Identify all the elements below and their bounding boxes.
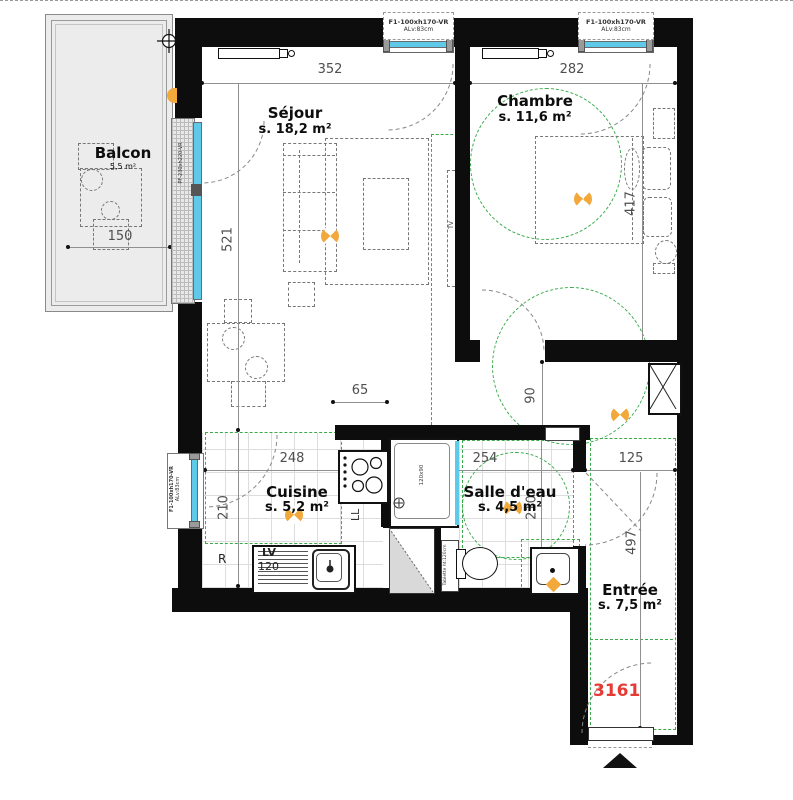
window-label-line2: ALv:83cm <box>384 26 453 34</box>
wall-niche <box>545 427 580 441</box>
entry-arrow <box>603 753 637 768</box>
light-icon-bedroom <box>574 190 592 208</box>
wall-segment <box>175 18 383 47</box>
dim-cuisine-height: 210 <box>217 490 232 526</box>
wall-segment <box>178 302 202 453</box>
window-label-left: F1-100xh170-VR ALv:83cm <box>169 457 183 521</box>
window-cap <box>646 39 653 52</box>
room-label-balcon: Balcon <box>78 144 168 162</box>
wall-segment <box>455 18 470 362</box>
dim-chambre-height: 417 <box>624 186 639 222</box>
wall-segment <box>455 340 480 362</box>
radiator-knob <box>288 50 295 57</box>
dim-tick <box>331 400 335 404</box>
room-label-chambre: Chambre <box>490 92 580 110</box>
dim-tick <box>540 360 544 364</box>
dim-line <box>238 433 239 586</box>
entry-door-leaf <box>588 727 654 741</box>
radiator-knob <box>547 50 554 57</box>
coffee-table <box>363 178 409 250</box>
cooktop <box>338 450 389 504</box>
radiator <box>482 48 539 59</box>
dim-tick <box>66 245 70 249</box>
radiator <box>218 48 280 59</box>
dim-sejour-height: 521 <box>221 222 236 258</box>
window-cap <box>578 39 585 52</box>
floor-plan: TV <box>0 0 793 800</box>
wall-segment <box>172 588 585 612</box>
window-label-line2: ALv:83cm <box>175 457 181 521</box>
window-glazing <box>388 41 449 48</box>
balcony-chair <box>101 201 120 220</box>
window-label-line2: ALv:83cm <box>579 26 653 34</box>
washbasin-faucet <box>550 568 555 573</box>
dim-line <box>238 83 239 432</box>
sofa-back-line <box>299 150 300 263</box>
washer-label: LL <box>353 503 359 527</box>
window-label-box: F1-100xh170-VR ALv:83cm <box>578 12 654 40</box>
window-cap <box>446 39 453 52</box>
dining-chair <box>231 381 266 407</box>
door-swing-window-living <box>387 64 453 130</box>
wall-segment <box>573 440 586 472</box>
dim-chambre-width: 282 <box>552 62 592 77</box>
accessibility-line-living-top <box>431 134 458 135</box>
wall-light-icon <box>167 88 177 103</box>
accessibility-line-living <box>431 134 432 430</box>
room-label-salledeau: Salle d'eau <box>455 483 565 501</box>
window-glazing <box>583 41 649 48</box>
dim-line <box>470 83 677 84</box>
radiator-valve <box>279 49 288 58</box>
fridge-label: R <box>218 552 226 566</box>
dim-line <box>542 362 543 429</box>
accessibility-line-entry <box>590 639 673 640</box>
reserved-area <box>389 528 435 594</box>
room-area-salledeau: s. 4,5 m² <box>455 500 565 515</box>
wall-segment <box>545 340 693 362</box>
room-label-entree: Entrée <box>585 581 675 599</box>
unit-number: 3161 <box>593 681 653 701</box>
wardrobe <box>643 197 672 237</box>
shower-size-label: 120x90 <box>419 455 425 495</box>
room-area-sejour: s. 18,2 m² <box>250 122 340 137</box>
window-label-line1: F1-100xh170-VR <box>384 18 453 26</box>
dim-line <box>68 247 170 248</box>
dim-hall-width: 65 <box>345 383 375 398</box>
dim-hall-height: 90 <box>524 381 539 411</box>
dim-tick <box>385 400 389 404</box>
room-area-balcon: 5,5 m² <box>90 162 156 171</box>
bedroom-chair <box>624 148 640 190</box>
light-icon-living <box>321 227 339 245</box>
dishwasher-label: LV <box>262 546 276 559</box>
window-label-box: F1-100xh170-VR ALv:83cm <box>383 12 454 40</box>
property-line <box>0 0 793 1</box>
dim-tick <box>236 428 240 432</box>
dim-line <box>642 83 643 356</box>
radiator-valve <box>538 49 547 58</box>
dim-line <box>202 83 455 84</box>
wardrobe <box>642 147 671 190</box>
dishwasher-width-label: 120 <box>258 560 279 573</box>
balcony-door-glazing <box>193 122 202 300</box>
dim-salledeau-width: 254 <box>465 451 505 466</box>
technical-shaft <box>648 363 682 415</box>
sink-bowl-inner <box>316 553 342 582</box>
room-area-chambre: s. 11,6 m² <box>490 110 580 125</box>
stool-base <box>653 263 675 274</box>
room-label-cuisine: Cuisine <box>252 483 342 501</box>
dim-cuisine-width: 248 <box>272 451 312 466</box>
light-icon-entry <box>611 406 629 424</box>
wall-segment <box>452 18 578 47</box>
balcony-door-label: PF-230xh220-VR <box>178 118 184 208</box>
shelf-label: Tablette ht:120cm <box>443 535 455 595</box>
balcony-door-handle <box>191 184 202 196</box>
dim-entree-width: 125 <box>611 451 651 466</box>
wall-segment <box>175 18 202 118</box>
wall-segment <box>570 735 588 745</box>
window-cap <box>189 521 200 528</box>
room-area-cuisine: s. 5,2 m² <box>252 500 342 515</box>
dim-sejour-width: 352 <box>310 62 350 77</box>
dining-chair <box>288 282 315 307</box>
toilet-bowl <box>462 547 498 580</box>
window-glazing <box>191 458 198 522</box>
stool <box>655 240 677 264</box>
dim-entree-height: 497 <box>625 523 640 563</box>
nightstand <box>653 108 675 139</box>
room-label-sejour: Séjour <box>250 104 340 122</box>
dining-chair <box>222 327 245 350</box>
wall-segment <box>652 735 693 745</box>
window-cap <box>189 453 200 460</box>
dim-balcon-width: 150 <box>103 229 137 244</box>
window-cap <box>383 39 390 52</box>
window-label-line1: F1-100xh170-VR <box>579 18 653 26</box>
room-area-entree: s. 7,5 m² <box>585 598 675 613</box>
dining-chair <box>245 356 268 379</box>
entry-door-threshold <box>588 747 652 748</box>
dim-line <box>333 402 387 403</box>
balcony-chair <box>81 169 103 191</box>
